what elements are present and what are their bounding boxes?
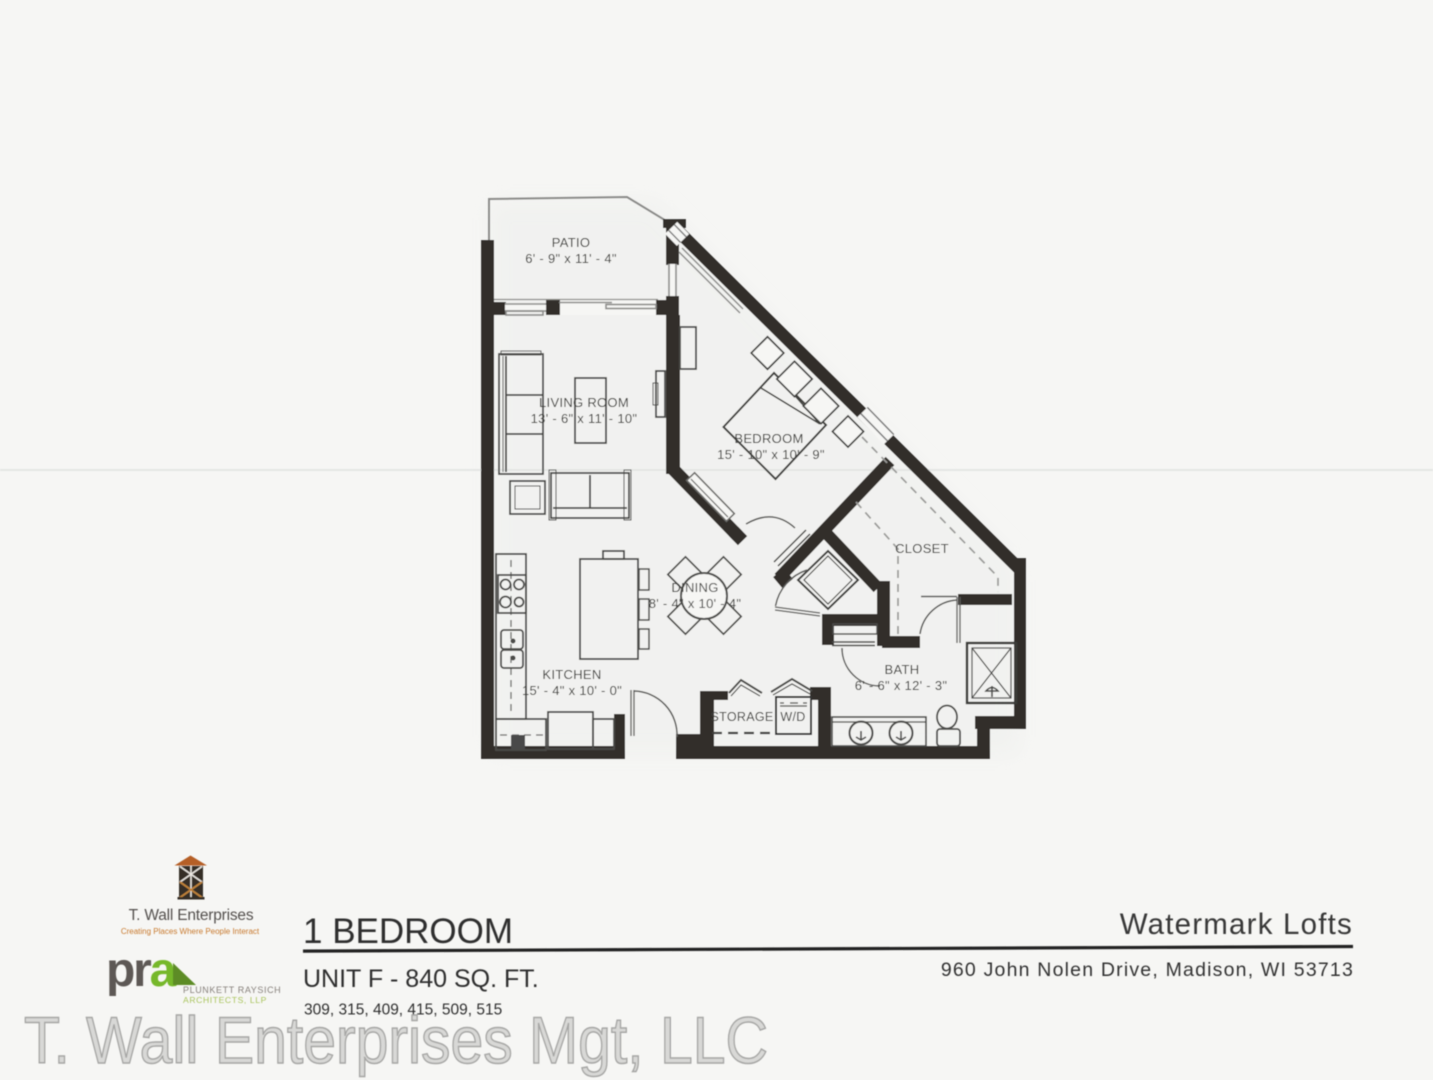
svg-text:8' - 4" x 10' - 4": 8' - 4" x 10' - 4": [649, 596, 742, 611]
svg-text:1 BEDROOM: 1 BEDROOM: [303, 912, 513, 951]
svg-text:STORAGE: STORAGE: [711, 710, 774, 724]
svg-text:Watermark Lofts: Watermark Lofts: [1120, 908, 1353, 941]
svg-text:KITCHEN: KITCHEN: [542, 667, 601, 682]
svg-text:15' - 4" x 10' - 0": 15' - 4" x 10' - 0": [522, 683, 622, 698]
svg-text:6' - 9" x 11' - 4": 6' - 9" x 11' - 4": [525, 251, 617, 266]
svg-text:BATH: BATH: [885, 662, 920, 677]
svg-text:UNIT F - 840 SQ. FT.: UNIT F - 840 SQ. FT.: [303, 965, 539, 993]
svg-text:CLOSET: CLOSET: [895, 541, 949, 556]
svg-text:LIVING ROOM: LIVING ROOM: [539, 395, 629, 410]
svg-text:Creating Places Where People I: Creating Places Where People Interact: [121, 927, 260, 936]
svg-text:PLUNKETT RAYSICH: PLUNKETT RAYSICH: [183, 985, 281, 995]
svg-text:13' - 6" x 11' - 10": 13' - 6" x 11' - 10": [531, 411, 638, 426]
svg-text:pra: pra: [106, 944, 177, 997]
svg-text:309, 315, 409, 415, 509, 515: 309, 315, 409, 415, 509, 515: [304, 1002, 502, 1019]
svg-text:W/D: W/D: [780, 710, 805, 724]
svg-text:BEDROOM: BEDROOM: [734, 431, 803, 446]
svg-text:ARCHITECTS, LLP: ARCHITECTS, LLP: [183, 995, 267, 1005]
svg-text:6' - 6" x 12' - 3": 6' - 6" x 12' - 3": [855, 678, 948, 693]
svg-text:960 John Nolen Drive, Madison,: 960 John Nolen Drive, Madison, WI 53713: [941, 959, 1354, 981]
svg-text:T. Wall Enterprises: T. Wall Enterprises: [129, 907, 254, 924]
svg-text:15' - 10" x 10' - 9": 15' - 10" x 10' - 9": [717, 447, 825, 462]
svg-text:PATIO: PATIO: [552, 235, 591, 250]
svg-text:DINING: DINING: [671, 580, 718, 595]
